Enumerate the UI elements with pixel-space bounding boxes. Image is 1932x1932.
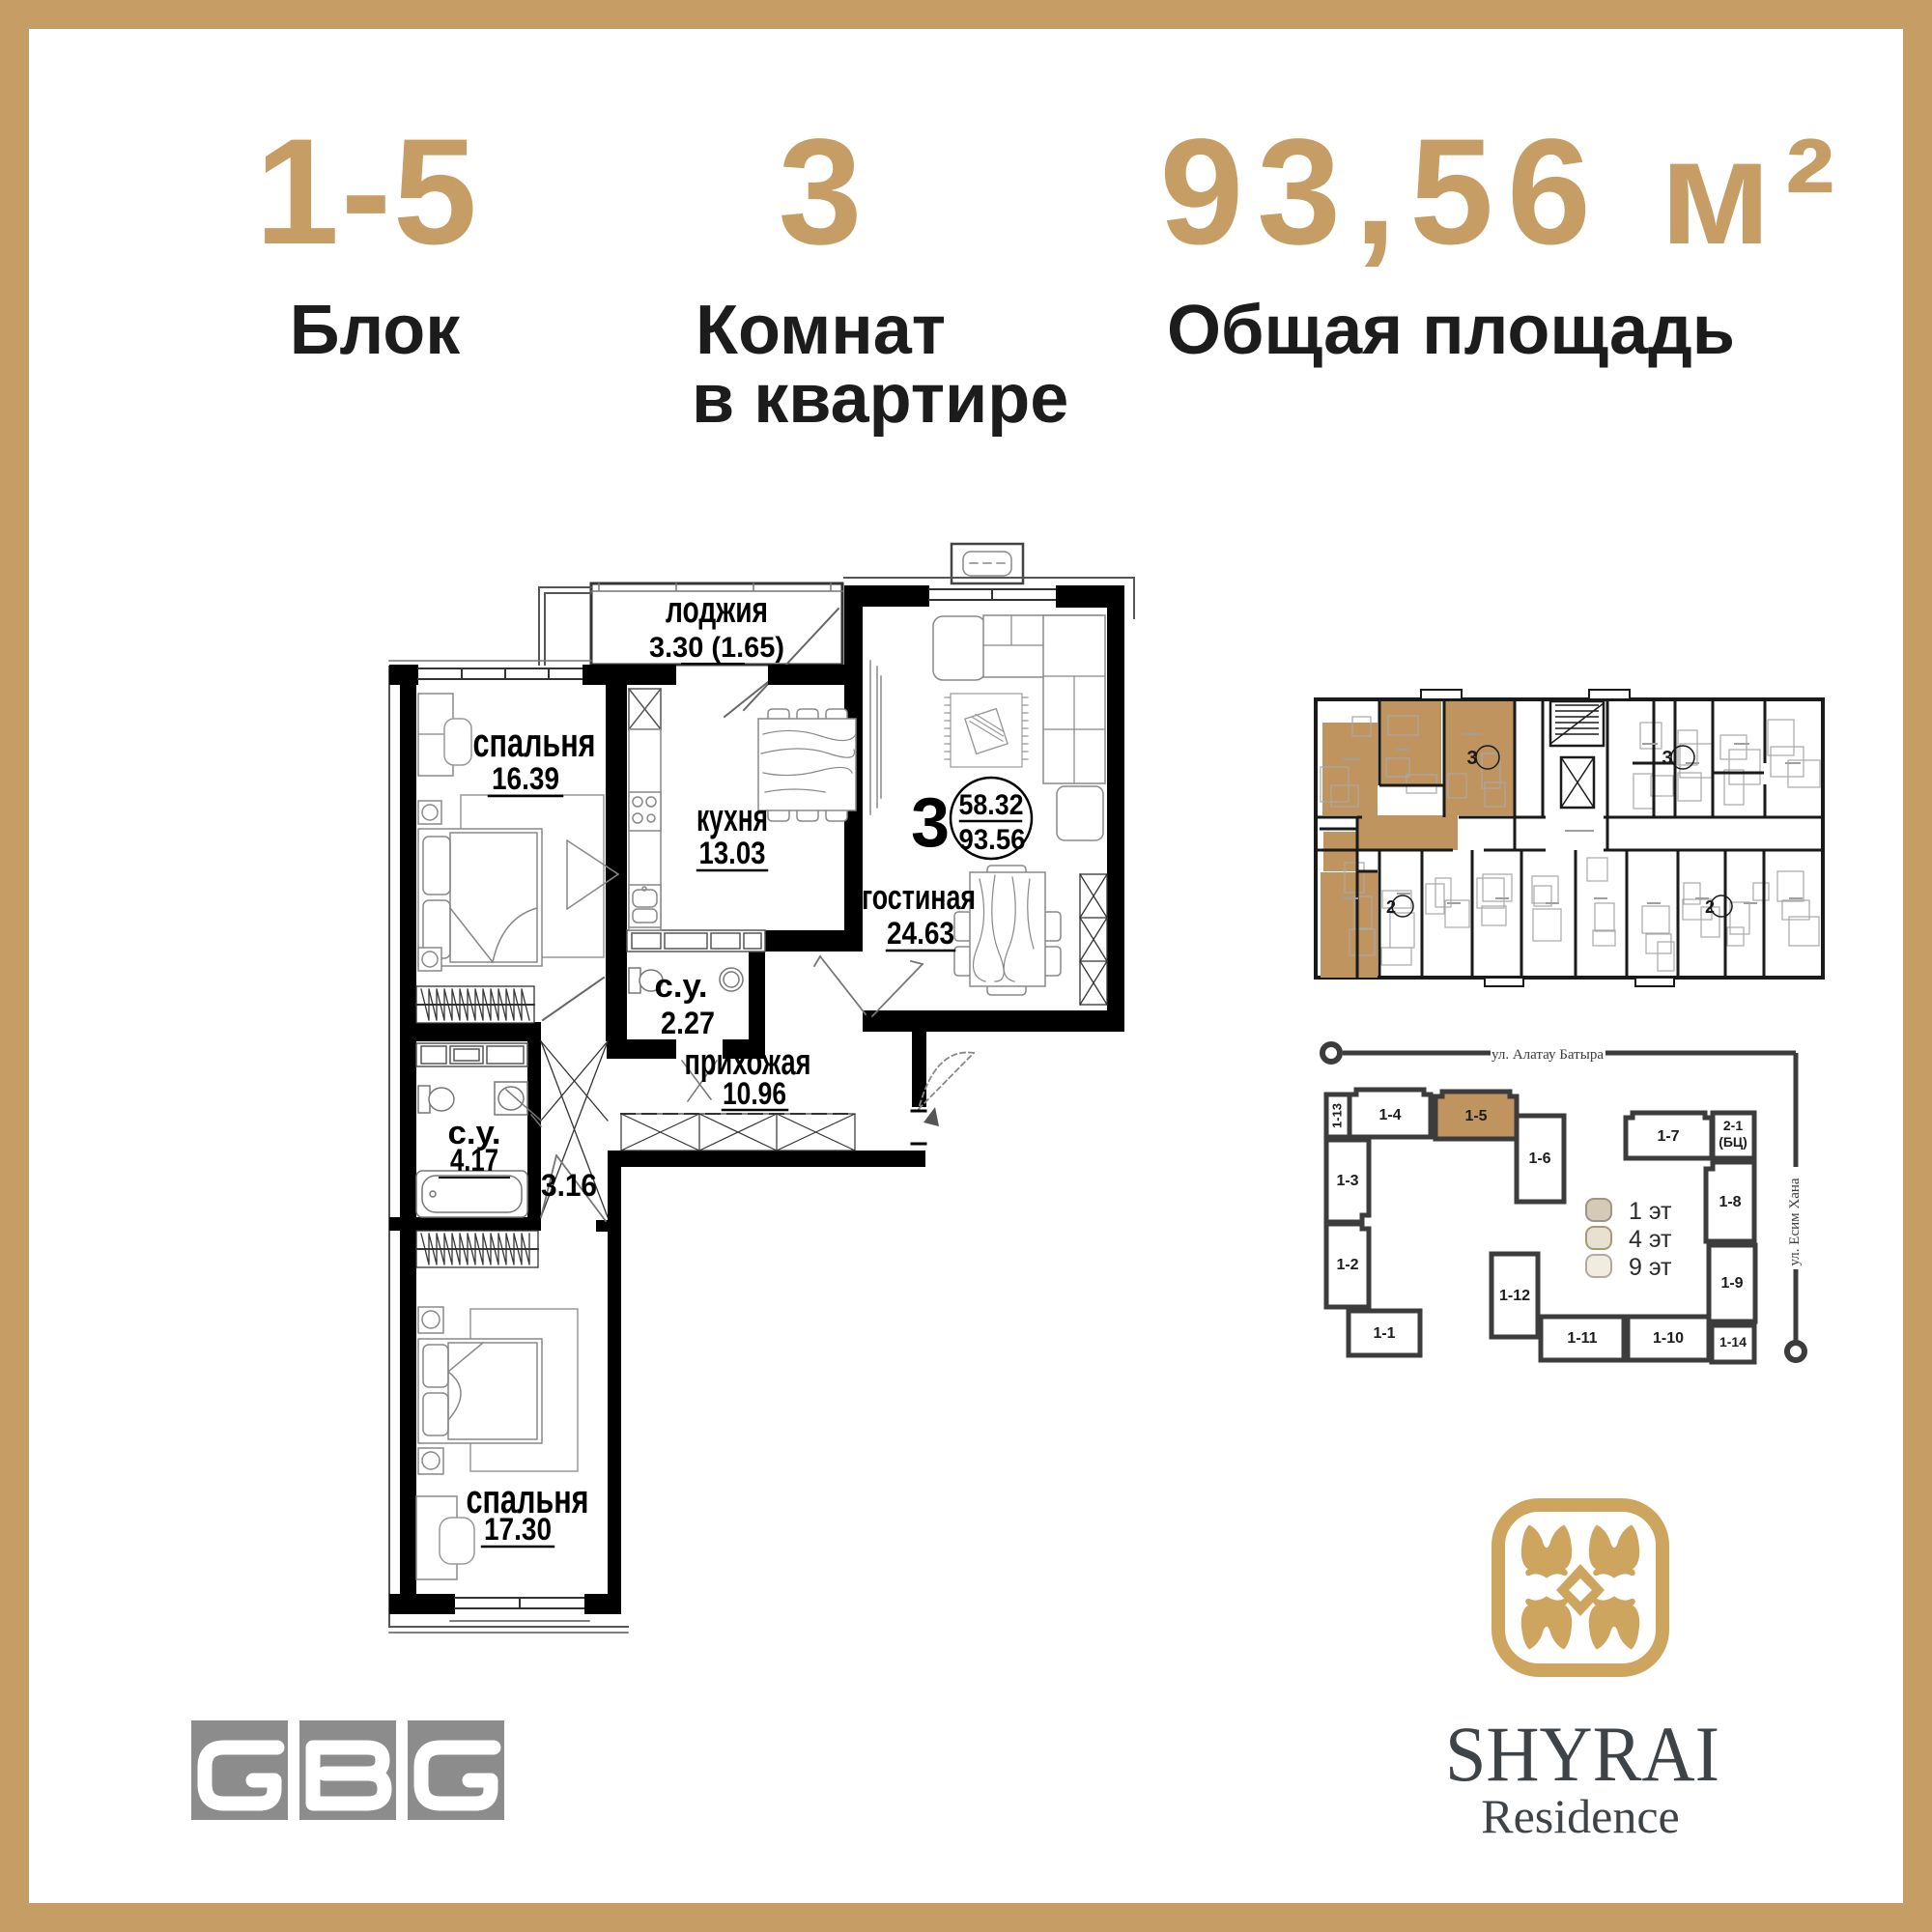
- svg-text:3: 3: [779, 108, 863, 276]
- svg-text:кухня: кухня: [696, 797, 768, 839]
- svg-text:с.у.: с.у.: [655, 968, 708, 1005]
- svg-text:1-11: 1-11: [1567, 1330, 1597, 1347]
- svg-text:Блок: Блок: [290, 292, 462, 369]
- svg-text:Residence: Residence: [1481, 1789, 1679, 1843]
- svg-text:1 эт: 1 эт: [1629, 1198, 1672, 1225]
- svg-text:1-7: 1-7: [1657, 1128, 1679, 1145]
- svg-text:1-4: 1-4: [1378, 1107, 1401, 1123]
- svg-text:1-3: 1-3: [1336, 1173, 1358, 1189]
- svg-text:1-14: 1-14: [1719, 1334, 1747, 1350]
- svg-text:SHYRAI: SHYRAI: [1445, 1710, 1719, 1798]
- svg-text:спальня: спальня: [473, 720, 596, 765]
- svg-text:3: 3: [1662, 748, 1672, 769]
- svg-text:2: 2: [1386, 897, 1396, 917]
- svg-text:(БЦ): (БЦ): [1719, 1134, 1747, 1150]
- svg-text:3: 3: [1466, 748, 1477, 769]
- svg-text:Общая площадь: Общая площадь: [1167, 292, 1735, 369]
- svg-text:17.30: 17.30: [484, 1512, 552, 1547]
- svg-text:24.63: 24.63: [887, 916, 954, 951]
- svg-text:3.30 (1.65): 3.30 (1.65): [649, 632, 784, 664]
- svg-text:2.27: 2.27: [661, 1006, 715, 1040]
- svg-text:лоджия: лоджия: [666, 590, 768, 631]
- svg-text:1-5: 1-5: [1464, 1108, 1487, 1124]
- svg-text:13.03: 13.03: [699, 836, 766, 870]
- svg-text:10.96: 10.96: [723, 1076, 786, 1111]
- svg-text:93,56 м²: 93,56 м²: [1159, 108, 1848, 276]
- svg-text:ул. Алатау Батыра: ул. Алатау Батыра: [1492, 1047, 1604, 1063]
- svg-text:16.39: 16.39: [492, 761, 559, 796]
- svg-text:1-1: 1-1: [1373, 1325, 1395, 1342]
- svg-text:1-6: 1-6: [1528, 1151, 1550, 1167]
- svg-text:1-5: 1-5: [255, 108, 478, 276]
- svg-text:2: 2: [1705, 897, 1715, 917]
- svg-text:3: 3: [911, 784, 950, 862]
- svg-text:Комнат: Комнат: [696, 292, 946, 369]
- svg-text:4 эт: 4 эт: [1629, 1226, 1672, 1253]
- svg-text:ул. Есим Хана: ул. Есим Хана: [1787, 1178, 1803, 1265]
- svg-text:93.56: 93.56: [959, 824, 1026, 856]
- svg-text:58.32: 58.32: [959, 789, 1024, 821]
- svg-text:1-2: 1-2: [1336, 1257, 1358, 1273]
- svg-text:1-13: 1-13: [1329, 1103, 1344, 1128]
- svg-text:9 эт: 9 эт: [1629, 1254, 1672, 1281]
- svg-text:1-10: 1-10: [1653, 1330, 1684, 1347]
- svg-text:3.16: 3.16: [541, 1168, 597, 1203]
- svg-text:в квартире: в квартире: [692, 360, 1068, 438]
- svg-text:4.17: 4.17: [450, 1143, 498, 1178]
- svg-text:2-1: 2-1: [1723, 1118, 1743, 1133]
- svg-text:1-8: 1-8: [1719, 1194, 1741, 1210]
- svg-text:1-9: 1-9: [1720, 1275, 1743, 1292]
- svg-text:1-12: 1-12: [1499, 1288, 1530, 1304]
- svg-text:гостиная: гостиная: [862, 877, 976, 917]
